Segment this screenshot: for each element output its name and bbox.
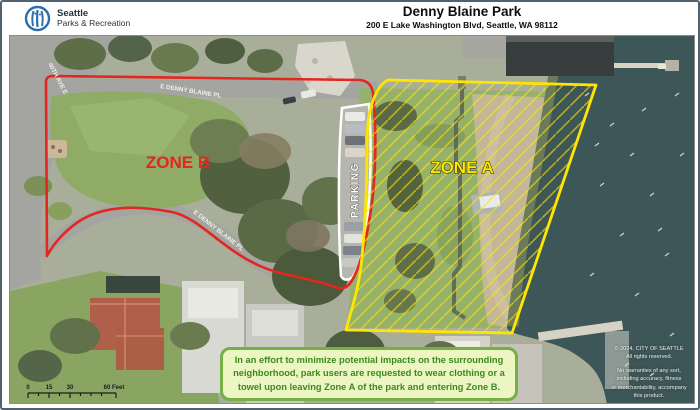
seattle-parks-logo: Seattle Parks & Recreation bbox=[24, 5, 130, 32]
zone-a-label: ZONE A bbox=[430, 158, 494, 177]
credits-line: © 2024, CITY OF SEATTLE bbox=[598, 345, 695, 353]
header: Seattle Parks & Recreation Denny Blaine … bbox=[2, 2, 698, 35]
credits-line: All rights reserved. bbox=[598, 353, 695, 361]
playground bbox=[46, 140, 67, 158]
parking-label: PARKING bbox=[350, 162, 361, 218]
scale-tick-15: 15 bbox=[46, 385, 53, 391]
park-address: 200 E Lake Washington Blvd, Seattle, WA … bbox=[272, 20, 652, 30]
credits-block: © 2024, CITY OF SEATTLE All rights reser… bbox=[598, 345, 695, 404]
credits-line: No warranties of any sort, bbox=[598, 367, 695, 375]
pool bbox=[106, 276, 160, 293]
notice-box: In an effort to minimize potential impac… bbox=[220, 347, 518, 401]
zone-b-label: ZONE B bbox=[146, 153, 210, 172]
credits-line: or merchantability, accompany bbox=[598, 384, 695, 392]
map-document: Seattle Parks & Recreation Denny Blaine … bbox=[0, 0, 700, 410]
credits-line: including accuracy, fitness bbox=[598, 375, 695, 383]
aerial-map: PARKING ZONE B ZONE A 40TH AVE E E DENNY… bbox=[9, 35, 695, 404]
seattle-parks-logo-icon bbox=[24, 5, 51, 32]
logo-line2: Parks & Recreation bbox=[57, 19, 130, 28]
title-block: Denny Blaine Park 200 E Lake Washington … bbox=[272, 4, 652, 30]
logo-text: Seattle Parks & Recreation bbox=[57, 9, 130, 28]
scale-tick-30: 30 bbox=[67, 385, 74, 391]
scale-tick-60-feet: 60 Feet bbox=[104, 385, 125, 391]
page-title: Denny Blaine Park bbox=[272, 4, 652, 19]
credits-line: this product. bbox=[598, 392, 695, 400]
